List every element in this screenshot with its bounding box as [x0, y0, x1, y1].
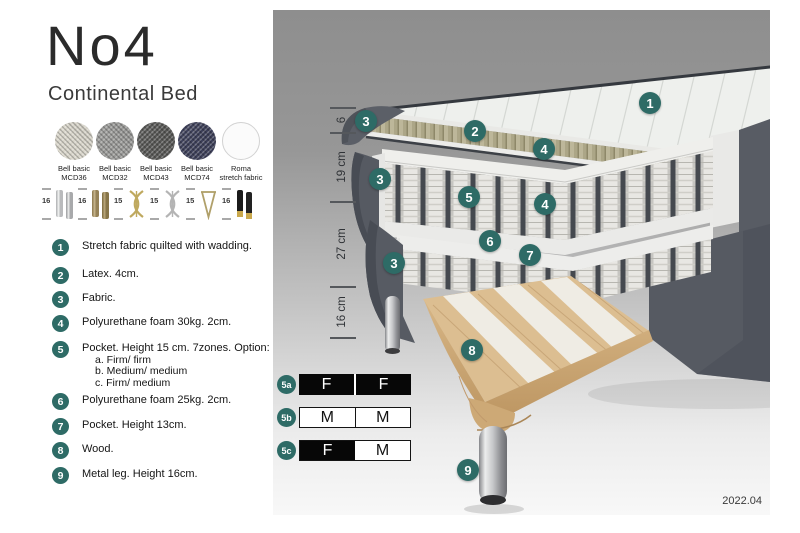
fabric-swatch-roma: [222, 122, 260, 160]
version-stamp: 2022.04: [722, 495, 762, 507]
dimension-label: 27 cm: [336, 214, 350, 274]
leg-height: 15: [150, 196, 158, 205]
dimension-label: 16 cm: [336, 282, 350, 342]
leg-height: 16: [222, 196, 230, 205]
list-item: 2 Latex. 4cm.: [52, 267, 270, 284]
page-title: No4: [46, 18, 158, 74]
firmness-row-5c: 5c F M: [277, 440, 411, 461]
feature-text: Wood.: [82, 442, 114, 456]
measure-dash: [78, 188, 87, 190]
callout-badge-7: 7: [519, 244, 541, 266]
list-item: 1 Stretch fabric quilted with wadding.: [52, 239, 270, 256]
callout-badge-9: 9: [457, 459, 479, 481]
leg-option-wood: 16: [78, 186, 112, 222]
callout-badge-3: 3: [369, 168, 391, 190]
ruler-tick: [330, 201, 356, 203]
page-subtitle: Continental Bed: [48, 83, 198, 106]
black-gold-legs-icon: [234, 188, 256, 225]
gold-twist-legs-icon: [126, 188, 148, 225]
firmness-bar: M M: [299, 407, 411, 428]
list-item: 6 Polyurethane foam 25kg. 2cm.: [52, 393, 270, 410]
measure-dash: [42, 188, 51, 190]
callout-badge-5: 5: [458, 186, 480, 208]
firmness-cell: M: [300, 408, 356, 427]
list-item: 4 Polyurethane foam 30kg. 2cm.: [52, 315, 270, 332]
measure-dash: [114, 218, 123, 220]
feature-text: Pocket. Height 13cm.: [82, 418, 187, 432]
feature-number-badge: 9: [52, 467, 69, 484]
gold-hairpin-leg-icon: [198, 188, 220, 225]
bed-cutaway-panel: 6 19 cm 27 cm 16 cm 1 3 2 4 3 5 4 6 7 3 …: [273, 10, 770, 515]
measure-dash: [186, 188, 195, 190]
feature-text: Metal leg. Height 16cm.: [82, 467, 198, 481]
firmness-bar: F F: [299, 374, 411, 395]
list-item: 7 Pocket. Height 13cm.: [52, 418, 270, 435]
fabric-swatch-mcd43: [137, 122, 175, 160]
wood-cylinder-legs-icon: [90, 188, 112, 225]
firmness-row-5b: 5b M M: [277, 407, 411, 428]
leg-option-gold-twist: 15: [114, 186, 148, 222]
feature-number-badge: 4: [52, 315, 69, 332]
callout-badge-4: 4: [533, 138, 555, 160]
firmness-cell: F: [299, 374, 356, 395]
callout-badge-1: 1: [639, 92, 661, 114]
callout-badge-6: 6: [479, 230, 501, 252]
leg-height: 16: [78, 196, 86, 205]
feature-text: Fabric.: [82, 291, 116, 305]
chrome-cylinder-legs-icon: [54, 188, 76, 225]
firmness-cell: F: [356, 374, 411, 395]
firmness-badge: 5a: [277, 375, 296, 394]
leg-option-black-gold: 16: [222, 186, 256, 222]
firmness-cell: M: [356, 408, 411, 427]
firmness-cell: M: [355, 441, 410, 460]
measure-dash: [78, 218, 87, 220]
feature-text: Latex. 4cm.: [82, 267, 139, 281]
leg-height: 15: [186, 196, 194, 205]
feature-number-badge: 5: [52, 341, 69, 358]
measure-dash: [150, 188, 159, 190]
list-item: 5 Pocket. Height 15 cm. 7zones. Option: …: [52, 341, 270, 389]
feature-text: Stretch fabric quilted with wadding.: [82, 239, 252, 253]
feature-number-badge: 2: [52, 267, 69, 284]
feature-text: Polyurethane foam 30kg. 2cm.: [82, 315, 231, 329]
measure-dash: [186, 218, 195, 220]
feature-options: a. Firm/ firm b. Medium/ medium c. Firm/…: [95, 355, 270, 390]
callout-badge-3: 3: [383, 252, 405, 274]
leg-height: 16: [42, 196, 50, 205]
measure-dash: [150, 218, 159, 220]
firmness-badge: 5b: [277, 408, 296, 427]
silver-twist-legs-icon: [162, 188, 184, 225]
measure-dash: [222, 188, 231, 190]
feature-number-badge: 8: [52, 442, 69, 459]
leg-option-hairpin: 15: [186, 186, 220, 222]
leg-option-silver-twist: 15: [150, 186, 184, 222]
feature-number-badge: 1: [52, 239, 69, 256]
dimension-label: 19 cm: [336, 137, 350, 197]
firmness-bar: F M: [299, 440, 411, 461]
firmness-badge: 5c: [277, 441, 296, 460]
feature-number-badge: 6: [52, 393, 69, 410]
fabric-swatch-mcd32: [96, 122, 134, 160]
fabric-swatch-mcd74: [178, 122, 216, 160]
callout-badge-3: 3: [355, 110, 377, 132]
fabric-swatch-mcd36: [55, 122, 93, 160]
list-item: 3 Fabric.: [52, 291, 270, 308]
firmness-cell: F: [300, 441, 355, 460]
callout-badge-8: 8: [461, 339, 483, 361]
leg-option-chrome: 16: [42, 186, 76, 222]
feature-text: Pocket. Height 15 cm. 7zones. Option: a.…: [82, 341, 270, 389]
fabric-label: Romastretch fabric: [214, 164, 268, 182]
callout-badge-4: 4: [534, 193, 556, 215]
list-item: 9 Metal leg. Height 16cm.: [52, 467, 270, 484]
list-item: 8 Wood.: [52, 442, 270, 459]
callout-badge-2: 2: [464, 120, 486, 142]
feature-number-badge: 3: [52, 291, 69, 308]
feature-number-badge: 7: [52, 418, 69, 435]
measure-dash: [222, 218, 231, 220]
leg-height: 15: [114, 196, 122, 205]
firmness-row-5a: 5a F F: [277, 374, 411, 395]
feature-text: Polyurethane foam 25kg. 2cm.: [82, 393, 231, 407]
measure-dash: [42, 218, 51, 220]
measure-dash: [114, 188, 123, 190]
